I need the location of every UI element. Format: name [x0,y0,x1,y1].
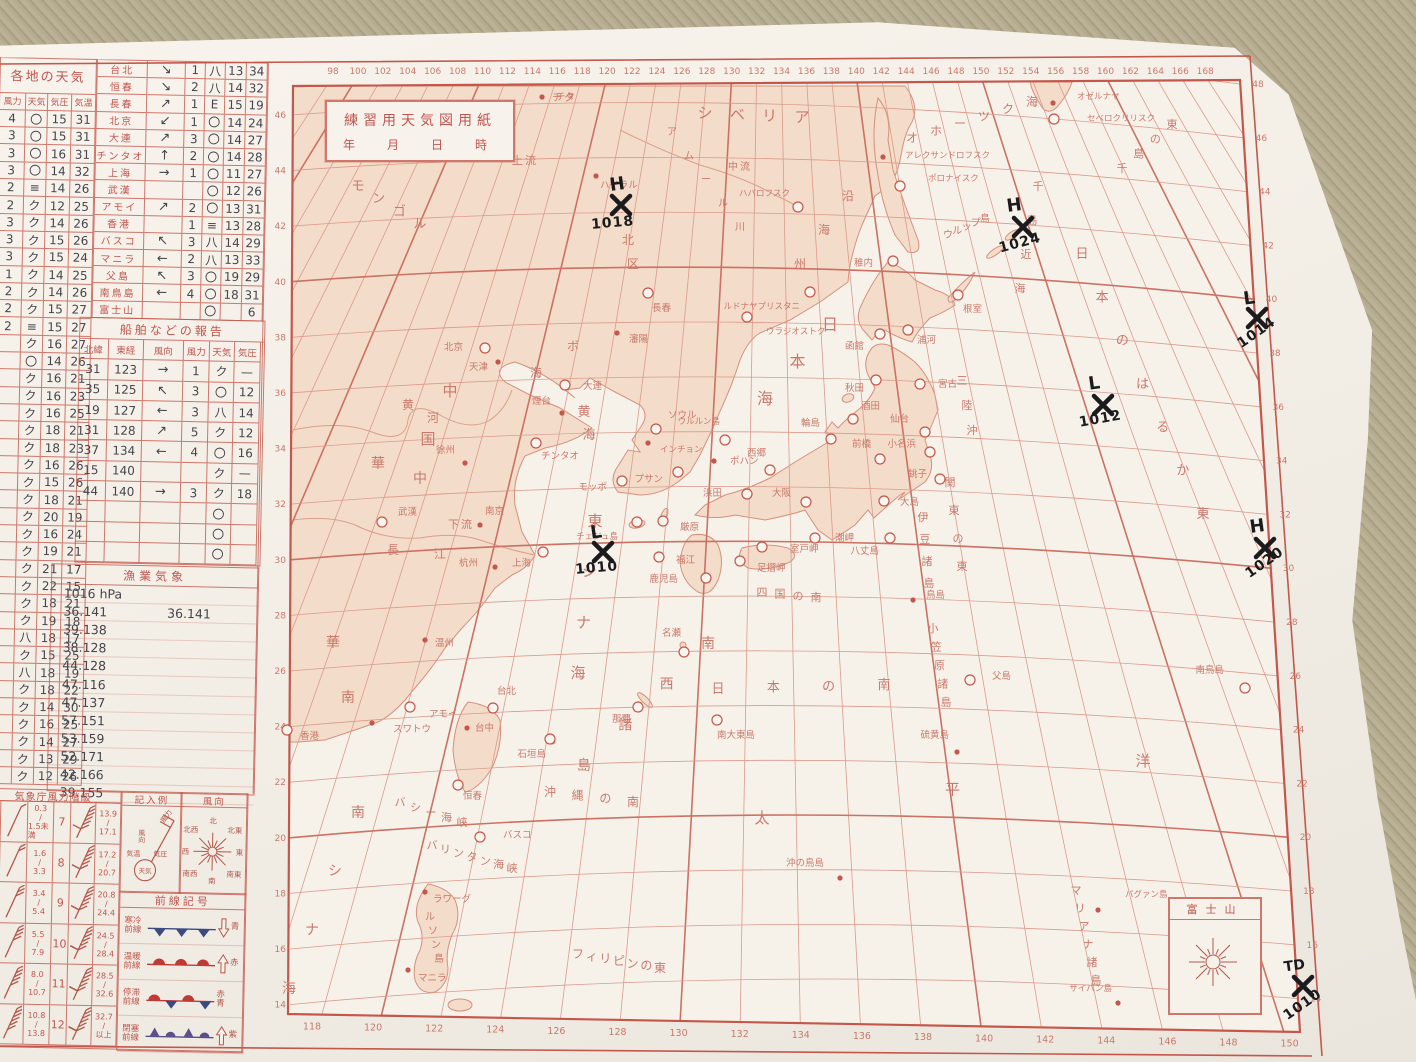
city-name: 南鳥島 [93,283,143,301]
city-value: 31 [244,201,265,219]
map-text: 34 [1276,457,1288,467]
staff [73,969,87,999]
map-text: バ [395,796,406,809]
station-ring-icon [810,533,820,543]
city-name: 大連 [96,129,146,147]
map-text: 大阪 [772,487,792,499]
station-ring-icon [617,476,627,486]
obs-value: ク [16,560,38,578]
obs-value [0,560,16,578]
map-text: 硫黄島 [920,729,949,741]
map-text: 千 [1033,180,1044,193]
staff [3,1009,17,1039]
city-value: 29 [242,269,263,287]
map-text: 40 [1266,295,1278,305]
map-text: 瀋陽 [629,333,649,345]
map-text: 前橋 [852,438,872,450]
ship-value: 18 [232,484,258,505]
wind-barb-icon [68,926,93,962]
barb-tick [86,1007,91,1011]
city-value: ↗ [146,130,184,148]
map-text: 那覇 [612,714,632,725]
arrow [219,918,229,936]
city-value: 1 [186,62,206,80]
ship-value: 12 [234,383,260,404]
map-text: オゼルナヤ [1077,91,1120,102]
map-text: 杭州 [459,557,478,569]
ship-value: — [234,362,260,383]
station-ring-icon [1049,114,1059,124]
obs-value: ≡ [24,180,46,198]
map-text: の [599,792,611,806]
station-ring-icon [805,287,815,297]
front-row-cold: 寒冷前線青 [119,908,245,947]
obs-value: 3 [0,144,25,162]
map-text: サイパン島 [1069,983,1112,994]
map-text: 128 [698,67,715,77]
map-text: 気温 [126,849,140,858]
map-text: 26 [275,667,287,677]
city-value: 28 [243,218,264,236]
wind-barb-icon [70,845,95,881]
wind-barb-icon [0,965,23,1001]
station-dot-icon [954,749,959,754]
city-value: 〇 [203,200,223,218]
map-text: 国 [420,430,435,448]
obs-value: ク [22,266,44,284]
station-dot-icon [462,460,467,465]
station-dot-icon [422,889,427,894]
beaufort-number: 8 [53,843,71,884]
map-text: ル [425,912,435,923]
map-text: 108 [449,67,466,77]
map-text: 168 [1197,67,1214,77]
front-row-warm: 温暖前線赤 [119,944,245,983]
obs-value [0,750,12,768]
map-text: 国 [775,588,786,601]
obs-value: ク [18,491,40,509]
station-ring-icon [953,290,963,300]
beaufort-range: 13.9/17.1 [96,803,122,844]
obs-value [0,438,19,456]
city-value: 14 [224,114,245,132]
map-text: 42 [275,222,286,232]
map-text: 河 [427,411,439,425]
map-text: 伊 [918,511,929,524]
obs-value: 〇 [25,128,47,146]
station-ring-icon [377,517,387,527]
map-text: 28 [275,611,287,621]
map-text: 西 [182,847,190,856]
barb-tick [87,966,92,970]
station-ring-icon [765,465,775,475]
station-ring-icon [651,424,661,434]
map-text: 島 [941,695,952,709]
map-text: アレクサンドロフスク [905,151,990,161]
city-value: 29 [243,235,264,253]
fuji-ray [1220,957,1226,959]
beaufort-barb [0,882,27,923]
station-ring-icon [871,375,881,385]
obs-title: 各地の天気 [0,58,97,95]
map-text: 鹿児島 [649,573,678,585]
barb-tick [20,843,25,847]
map-text: ー [701,175,711,186]
ship-value: ↗ [142,421,182,442]
map-text: ベ [730,105,745,123]
map-text: TD [1283,957,1306,976]
map-text: 34 [275,445,287,455]
obs-value [0,732,13,750]
station-ring-icon [658,516,668,526]
map-text: 152 [997,67,1014,77]
occluded-semicircle [200,1032,210,1037]
compass-ray [216,855,226,865]
city-name: アモイ [95,198,145,216]
obs-value: 14 [46,163,70,181]
obs-value [0,767,12,785]
map-text: 豆 [920,533,931,546]
compass-ray [201,847,208,850]
map-text: 海 [493,857,504,871]
barb [69,966,92,1000]
ship-value: 128 [107,421,142,442]
barb [5,924,24,958]
map-text: ゴ [393,203,406,219]
obs-value: ク [12,750,34,768]
beaufort-barb [69,884,95,925]
station-dot-icon [477,522,482,527]
map-text: 46 [1256,134,1268,144]
city-value: ↖ [143,267,181,285]
map-text: 98 [327,67,339,77]
arrow [216,1026,226,1044]
station-ring-icon [405,702,415,712]
map-text: 沖 [967,424,978,437]
barb [70,926,93,960]
ship-header: 風向 [144,340,184,361]
map-text: 100 [349,67,366,77]
map-text: ー [426,806,437,819]
map-text: 諸 [937,677,948,691]
map-text: 海 [441,810,452,824]
wind-direction-title: 風向 [181,793,247,808]
wind-barb-icon [0,884,25,920]
city-value: 19 [246,98,267,116]
map-text: 14 [275,1001,287,1011]
obs-value: 14 [44,267,68,285]
station-ring-icon [742,312,752,322]
ship-header: 北緯 [79,339,109,360]
map-text: 東 [1167,118,1178,131]
ship-value: 八 [208,402,233,423]
map-text: 函館 [845,340,864,352]
barb-tick [88,926,93,930]
ship-value [230,545,256,566]
map-text: 太 [754,809,769,827]
obs-value: 15 [45,249,69,267]
map-text: 32 [1279,510,1290,520]
station-dot-icon [422,637,427,642]
map-text: 原 [934,659,945,672]
ship-value: 123 [108,360,143,381]
station-dot-icon [1115,1000,1120,1005]
map-text: 南 [341,690,355,706]
map-text: 22 [1296,779,1307,789]
map-text: 38 [1269,349,1281,359]
obs-value: 25 [70,198,94,216]
obs-value: 19 [38,543,62,561]
city-value: 12 [223,183,244,201]
map-text: 30 [1283,564,1295,574]
map-text: 室戸岬 [790,543,819,555]
map-text: 恒春 [463,790,483,802]
station-ring-icon [475,832,485,842]
ship-value: 127 [107,400,142,421]
fuji-ray [1208,969,1210,975]
front-symbol-warm [145,949,218,977]
map-text: 台中 [475,722,494,734]
map-text: ィ [586,949,598,963]
ship-value: 15 [76,460,106,481]
compass-rose-icon: 北北東東南東南南西西北西 [180,807,246,893]
obs-value: ク [14,647,36,665]
map-text: 142 [1036,1034,1054,1045]
ship-value: ↖ [143,381,183,402]
staff [6,887,20,917]
ship-value [105,502,140,523]
city-value [143,302,181,320]
ship-value [180,503,206,524]
map-text: は [1136,377,1149,392]
station-ring-icon [654,552,664,562]
map-text: 沿 [842,189,854,203]
city-value: 13 [222,252,243,270]
obs-value: ク [24,197,46,215]
map-text: の [640,959,652,973]
obs-value: 2 [0,179,24,197]
beaufort-range: 10.8/13.8 [23,1004,50,1045]
map-text: ナ [576,613,591,631]
wind-barb-icon [66,1007,91,1043]
map-text: 島 [434,952,444,965]
map-text: 南 [701,636,715,652]
city-value [181,302,201,320]
ship-value: 〇 [206,524,231,545]
ship-value: 35 [78,379,108,400]
fuji-ray [1200,965,1206,967]
compass-ray [201,853,208,856]
map-text: 138 [823,67,840,77]
obs-value: 18 [41,422,65,440]
city-value: ↘ [147,78,185,96]
map-text: ン [372,192,385,207]
map-text: 西郷 [747,448,767,459]
station-ring-icon [885,533,895,543]
obs-value [0,473,18,491]
fuji-legend-box: 富士山 [1168,897,1262,1015]
obs-value: 15 [45,232,69,250]
barb-tick [21,803,26,807]
front-symbol-rows: 寒冷前線青温暖前線赤停滞前線赤青閉塞前線紫 [117,908,245,1055]
obs-value: ク [17,525,39,543]
city-value: 18 [221,286,242,304]
warm-semicircle [175,958,187,964]
ship-value: 1 [183,361,209,382]
map-text: 沖の鳥島 [786,857,824,869]
station-ring-icon [480,343,490,353]
map-text: 106 [424,67,441,77]
obs-value: 3 [0,248,23,266]
map-text: 関 [945,476,956,489]
front-label: 閉塞前線 [117,1024,143,1043]
front-label: 温暖前線 [119,952,145,971]
map-text: 130 [723,67,740,77]
ship-header: 天気 [210,341,235,362]
map-text: 上海 [512,557,532,569]
map-text: ム [684,150,694,162]
station-ring-icon [632,517,642,527]
station-dot-icon [539,94,544,99]
ship-value [75,521,105,542]
city-value: 31 [242,287,263,305]
beaufort-barb [0,842,28,883]
station-ring-icon [965,675,975,685]
occluded-triangle [150,1027,160,1036]
map-text: 162 [1122,67,1139,77]
map-text: 158 [1072,67,1089,77]
map-text: 134 [773,67,790,77]
obs-value [0,698,14,716]
arrow-up-icon [215,1024,227,1046]
station-ring-icon [757,542,767,552]
map-text: 父島 [992,670,1011,682]
city-value: 〇 [204,114,224,132]
city-value: 八 [202,234,222,252]
map-text: 110 [474,67,491,77]
map-text: 千 [1117,162,1128,175]
map-text: シ [328,864,342,880]
city-value: 3 [181,268,201,286]
obs-value: 25 [68,267,92,285]
city-value: 八 [206,62,226,80]
ship-header: 風力 [184,341,210,362]
beaufort-range: 17.2/20.7 [95,844,121,885]
ship-header: 東経 [109,339,144,360]
map-text: 島 [1133,146,1144,160]
map-text: モ [351,179,364,194]
fuji-ray [1196,945,1207,956]
map-text: 22 [275,778,286,788]
beaufort-barb [0,963,25,1004]
city-value: 2 [185,79,205,97]
city-value: E [205,97,225,115]
arrow [218,954,228,972]
station-dot-icon [1050,100,1055,105]
map-text: 海 [818,222,830,237]
map-text: リ [1075,902,1086,915]
map-text: 北東 [227,825,243,835]
ship-value [140,502,180,523]
map-text: 島 [924,576,935,590]
map-text: ツ [978,109,990,123]
ship-value: 31 [78,359,108,380]
obs-value: ク [21,335,43,353]
fuji-ray [1208,949,1210,955]
compass-ray [199,838,209,848]
city-name: 台北 [98,60,148,78]
station-dot-icon [1095,907,1100,912]
map-text: 148 [947,67,964,77]
ship-value [139,543,179,564]
obs-value: 2 [0,283,22,301]
map-text: 142 [873,67,890,77]
map-text: ナ [1083,938,1094,951]
map-text: の [1116,334,1129,349]
compass-ray [199,855,209,865]
barb-tick [89,885,94,889]
obs-value: 14 [44,284,68,302]
city-value: ← [144,250,182,268]
obs-value: 31 [72,111,96,129]
obs-value [0,490,18,508]
map-text: バスコ [503,830,532,841]
obs-value [0,404,20,422]
map-text: ン [453,847,464,860]
ship-value: 〇 [205,544,230,565]
ship-value: 5 [182,422,208,443]
city-name: 武漢 [95,180,145,198]
map-text: H [608,173,626,196]
map-text: の [793,589,804,602]
city-value: 1 [185,96,205,114]
map-text: 根室 [963,303,982,315]
map-text: 44 [1259,188,1271,198]
station-ring-icon [848,414,858,424]
map-text: 香港 [300,730,320,742]
city-value: 13 [223,200,244,218]
map-text: 海 [570,664,585,682]
map-text: アモイ [429,709,458,720]
fuji-ray [1219,968,1230,979]
ship-value: 31 [77,420,107,441]
front-note: 赤 [217,952,241,974]
map-text: 48 [1252,80,1264,90]
obs-value: ≡ [21,318,43,336]
map-text: 166 [1172,67,1189,77]
obs-value: ク [15,595,37,613]
barb [8,803,27,837]
compass-ray [217,854,224,857]
obs-value: 〇 [24,162,46,180]
city-value: 6 [242,304,263,322]
map-text: 陸 [962,399,973,412]
map-text: 38 [275,333,287,343]
map-text: の [953,532,964,545]
map-text: 海 [757,389,773,408]
map-title: 練習用天気図用紙 [344,110,496,130]
station-ring-icon [793,202,803,212]
ship-value: 〇 [208,443,233,464]
map-text: 石垣島 [517,748,546,760]
obs-value: 八 [14,664,36,682]
beaufort-table: 10.3/1.5未満713.9/17.121.6/3.3817.2/20.733… [0,800,121,1047]
map-text: 36 [275,389,287,399]
barb [71,885,94,919]
map-text: バ [427,839,438,852]
obs-value [0,525,17,543]
station-ring-icon [282,725,292,735]
